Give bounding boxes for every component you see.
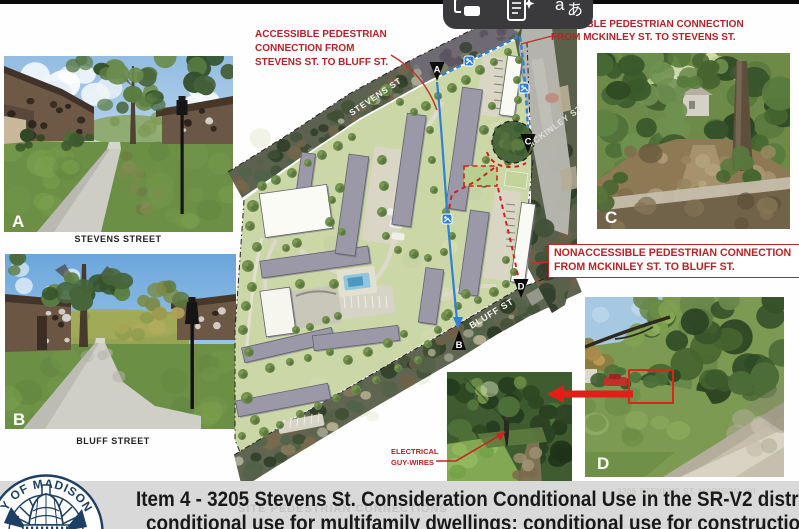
svg-text:あ: あ bbox=[567, 1, 583, 19]
svg-text:C: C bbox=[525, 137, 532, 148]
svg-text:B: B bbox=[13, 410, 25, 429]
svg-text:C: C bbox=[605, 208, 617, 227]
svg-text:A: A bbox=[12, 212, 24, 231]
svg-text:B: B bbox=[456, 340, 463, 351]
svg-text:D: D bbox=[597, 454, 609, 473]
svg-text:a: a bbox=[555, 0, 565, 14]
svg-text:A: A bbox=[434, 65, 441, 76]
svg-text:D: D bbox=[518, 282, 525, 293]
